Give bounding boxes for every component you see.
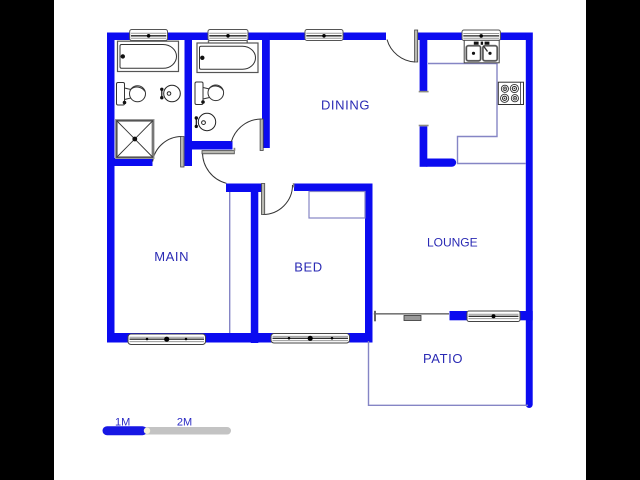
- svg-text:MAIN: MAIN: [154, 249, 189, 264]
- svg-text:DINING: DINING: [321, 98, 370, 113]
- svg-text:1M: 1M: [115, 416, 130, 428]
- svg-text:BED: BED: [294, 260, 323, 275]
- svg-text:PATIO: PATIO: [423, 351, 463, 366]
- svg-text:LOUNGE: LOUNGE: [427, 236, 478, 250]
- svg-text:2M: 2M: [177, 416, 192, 428]
